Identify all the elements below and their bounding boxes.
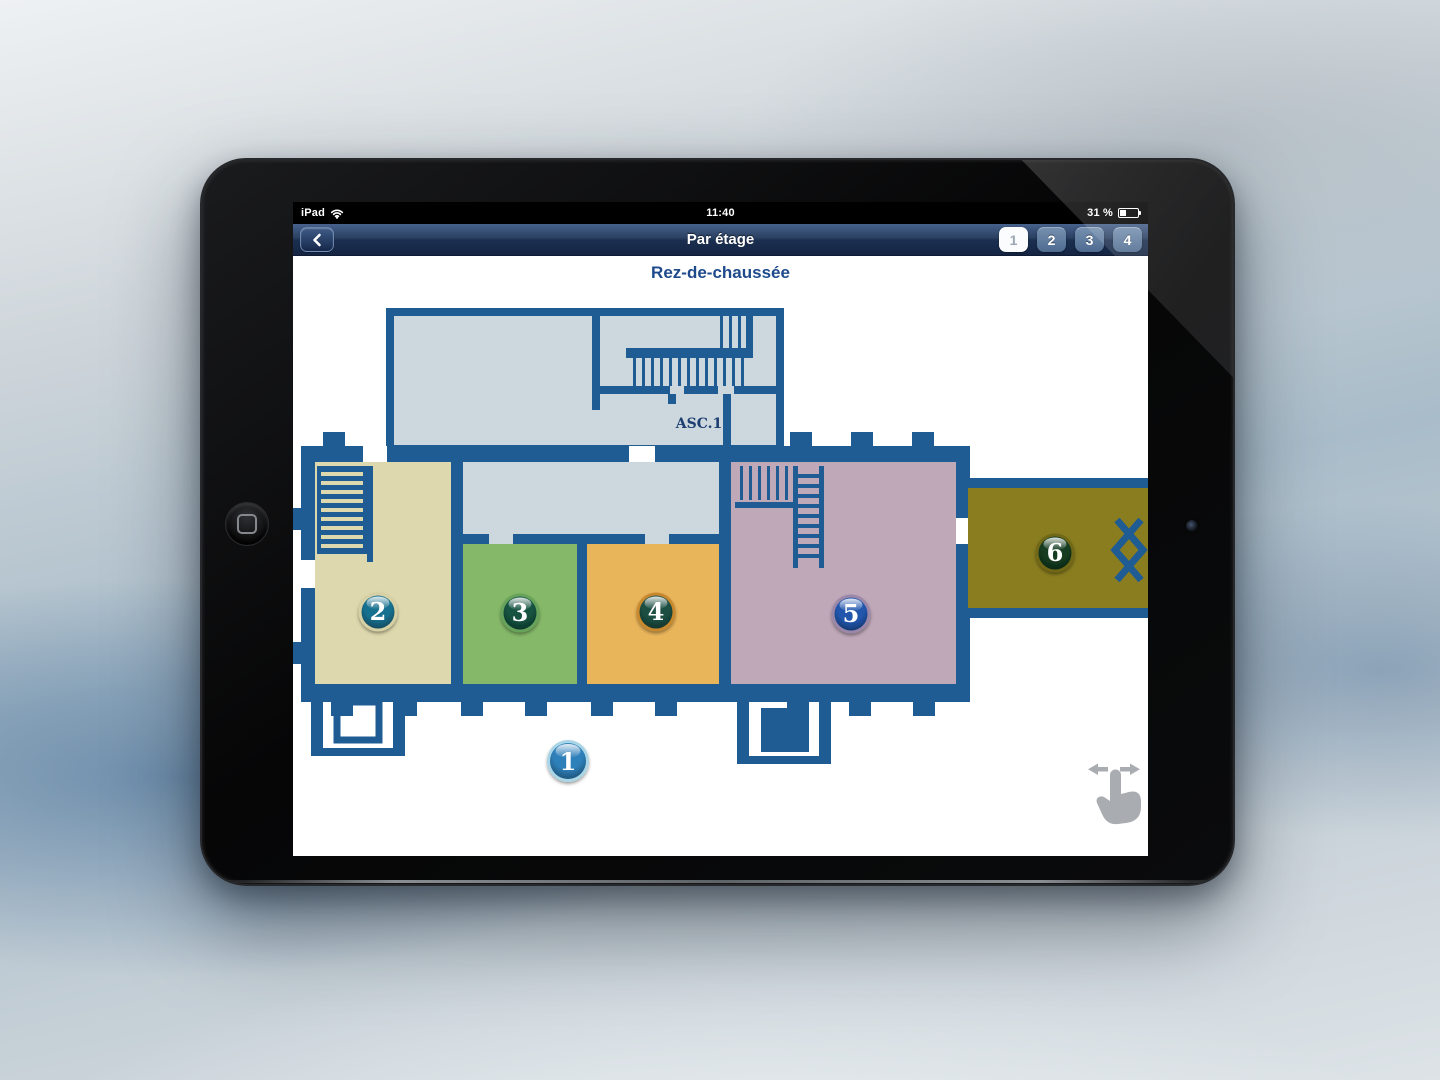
back-button[interactable] <box>300 227 334 252</box>
battery-fill <box>1120 210 1126 216</box>
floor-plan-page: Rez-de-chaussée <box>293 256 1148 856</box>
pointing-hand <box>1097 770 1141 825</box>
status-left: iPad <box>301 207 344 219</box>
marker-number: 5 <box>843 599 860 628</box>
wifi-icon <box>330 208 344 219</box>
ladder-treads <box>798 474 819 558</box>
photo-stage: iPad 11:40 31 % <box>0 0 1440 1080</box>
ipad-device: iPad 11:40 31 % <box>200 158 1235 886</box>
stair-side-wall <box>746 312 753 358</box>
swipe-right-arrow <box>1120 764 1140 776</box>
marker-number: 1 <box>560 747 577 776</box>
swipe-left-arrow <box>1088 764 1108 776</box>
screen: iPad 11:40 31 % <box>293 202 1148 855</box>
room-5[interactable] <box>731 462 956 684</box>
navigation-bar: Par étage 1 2 3 4 <box>293 224 1148 256</box>
battery-icon <box>1118 208 1139 218</box>
floor-page-button-1[interactable]: 1 <box>999 227 1028 252</box>
home-button[interactable] <box>225 502 269 546</box>
main-wing <box>293 432 1148 764</box>
marker-number: 4 <box>648 597 665 626</box>
upper-wing: ASC.1 <box>386 308 784 453</box>
clock: 11:40 <box>293 207 1148 219</box>
swipe-gesture-icon <box>1088 764 1141 825</box>
chevron-left-icon <box>311 233 323 247</box>
battery-percent: 31 % <box>1087 207 1113 219</box>
room-marker-6[interactable]: 6 <box>1036 534 1075 573</box>
room-corridor <box>463 462 719 534</box>
floor-page-button-4[interactable]: 4 <box>1113 227 1142 252</box>
elevator-label: ASC.1 <box>675 416 722 432</box>
room-marker-4[interactable]: 4 <box>637 593 676 632</box>
status-right: 31 % <box>1087 207 1139 219</box>
entrance-steps-center <box>737 694 831 764</box>
ladder-rail-left <box>793 466 798 568</box>
carrier-label: iPad <box>301 207 325 219</box>
stair-rail <box>367 466 373 562</box>
stair-landing <box>626 348 750 358</box>
front-camera <box>1186 520 1198 532</box>
floor-plan: ASC.1 <box>293 256 1148 856</box>
floor-title: Rez-de-chaussée <box>293 263 1148 283</box>
marker-number: 2 <box>370 597 387 626</box>
floor-page-button-3[interactable]: 3 <box>1075 227 1104 252</box>
room-marker-3[interactable]: 3 <box>501 594 540 633</box>
marker-number: 6 <box>1047 538 1064 567</box>
stair-treads <box>321 472 363 548</box>
status-bar: iPad 11:40 31 % <box>293 202 1148 224</box>
room-marker-5[interactable]: 5 <box>832 595 871 634</box>
floor-page-button-2[interactable]: 2 <box>1037 227 1066 252</box>
upper-wall <box>592 316 600 388</box>
room-marker-2[interactable]: 2 <box>359 593 398 632</box>
ladder-rail-right <box>819 466 824 568</box>
room-marker-1[interactable]: 1 <box>547 740 589 782</box>
stair-bar <box>735 502 797 508</box>
staircase-room-2 <box>317 466 373 562</box>
marker-number: 3 <box>512 598 529 627</box>
floor-pager: 1 2 3 4 <box>999 227 1142 252</box>
